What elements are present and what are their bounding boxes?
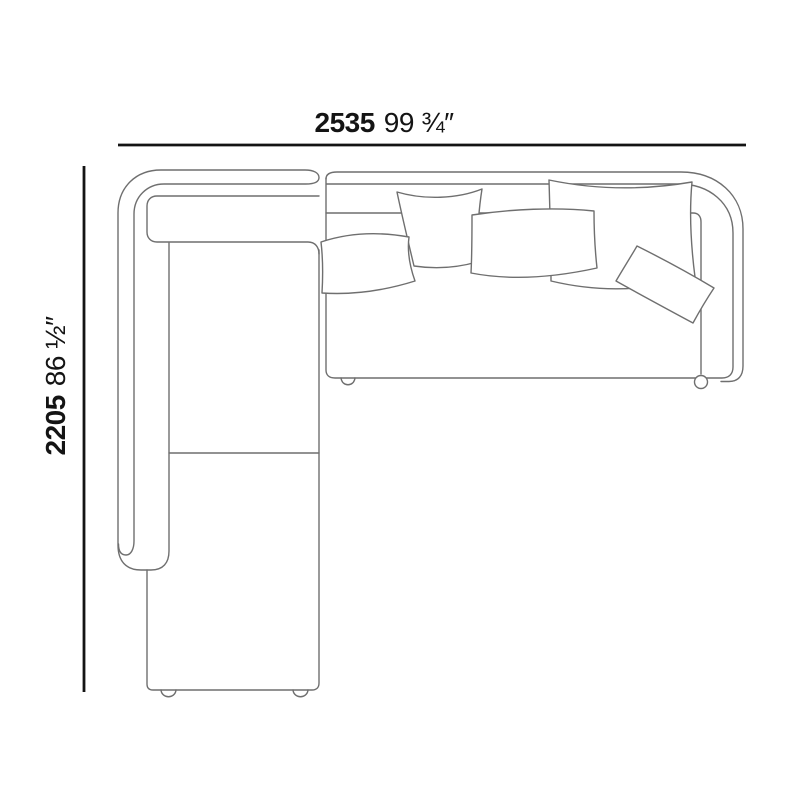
sofa-foot <box>293 690 308 697</box>
pillow-center-square <box>397 189 482 268</box>
dimension-label-width: 253599 ¾″ <box>315 109 454 137</box>
dimension-width-imperial: 99 ¾″ <box>384 107 454 138</box>
pillow-center-wide <box>471 209 597 277</box>
pillow-left-lumbar <box>321 234 415 294</box>
sofa-foot <box>341 378 355 385</box>
dimension-label-depth: 220586 ½″ <box>42 317 70 456</box>
left-section-arm-outline <box>118 170 319 570</box>
dimension-width-metric: 2535 <box>315 107 375 138</box>
dimension-depth-imperial: 86 ½″ <box>40 317 71 387</box>
pillows <box>321 180 714 323</box>
left-section-body <box>147 250 319 690</box>
left-section-back-cushion <box>147 196 319 254</box>
sofa-linework <box>118 170 743 697</box>
sofa-dimension-diagram: 253599 ¾″ 220586 ½″ <box>0 0 800 800</box>
sofa-foot <box>695 376 708 389</box>
dimension-depth-metric: 2205 <box>40 395 71 455</box>
sofa-foot <box>161 690 176 697</box>
